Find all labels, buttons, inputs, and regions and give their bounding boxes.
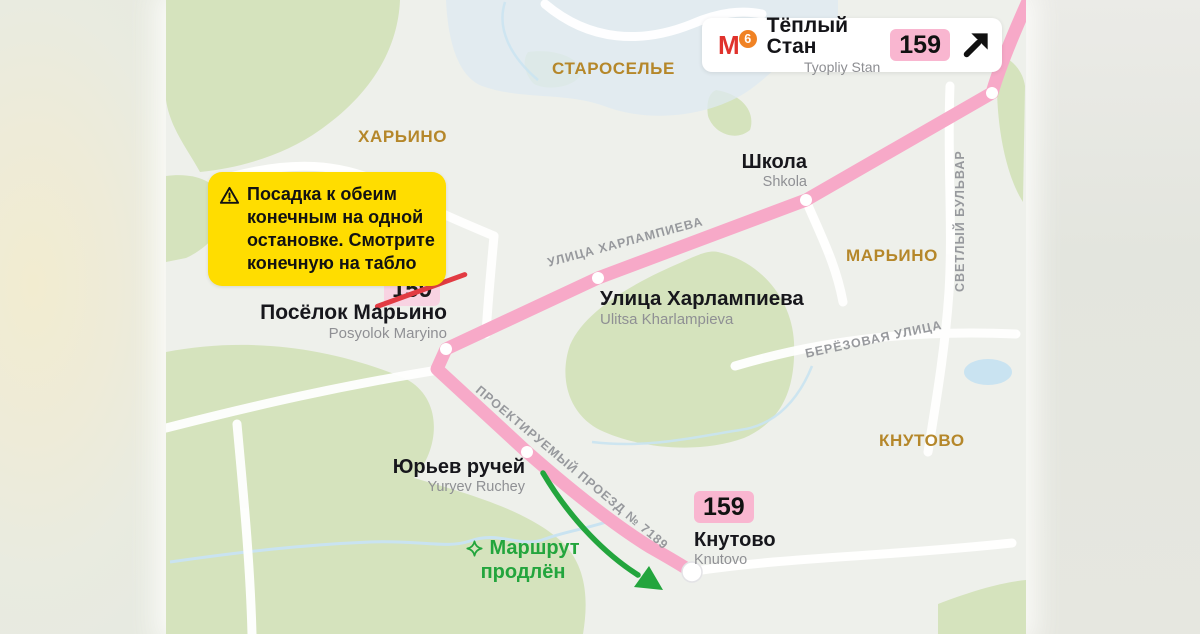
- stop-name: Кнутово: [694, 529, 776, 552]
- route-badge-header: 159: [890, 29, 950, 61]
- boarding-warning-box: Посадка к обеим конечным на одной остано…: [208, 172, 446, 286]
- metro-line-6-icon: 6: [739, 30, 757, 48]
- district-label-kharino: ХАРЬИНО: [358, 127, 447, 147]
- sparkle-icon: [466, 540, 483, 557]
- stop-translit: Shkola: [655, 174, 807, 191]
- stop-dot: [440, 343, 452, 355]
- green-area: [938, 580, 1026, 634]
- district-label-maryino: МАРЬИНО: [846, 246, 938, 266]
- stop-dot: [986, 87, 998, 99]
- warning-triangle-icon: [219, 186, 240, 205]
- stop-translit: Knutovo: [694, 552, 776, 569]
- blurred-left-border: [0, 0, 166, 634]
- stop-name: Школа: [655, 151, 807, 174]
- stop-translit: Ulitsa Kharlampieva: [600, 311, 804, 329]
- annotation-text-line1: Маршрут: [489, 536, 579, 560]
- warning-text-line: Посадка к обеим: [247, 183, 435, 206]
- metro-letter: М: [718, 32, 740, 58]
- warning-text-line: конечную на табло: [247, 252, 435, 275]
- arrow-up-right-icon: [962, 31, 990, 59]
- stop-label-posyolok-maryino: Посёлок Марьино Posyolok Maryino: [207, 301, 447, 343]
- extension-arrow-head: [634, 566, 663, 590]
- road: [807, 203, 843, 302]
- stop-label-shkola: Школа Shkola: [655, 151, 807, 191]
- warning-text-line: остановке. Смотрите: [247, 229, 435, 252]
- stop-translit: Yuryev Ruchey: [375, 479, 525, 496]
- route-badge-knutovo: 159: [694, 491, 754, 523]
- stop-name: Юрьев ручей: [375, 456, 525, 479]
- blurred-right-border: [1026, 0, 1200, 634]
- station-name: Тёплый Стан: [767, 15, 881, 57]
- stop-translit: Posyolok Maryino: [207, 325, 447, 343]
- metro-m-icon: М 6: [718, 32, 757, 58]
- stop-name: Улица Харлампиева: [600, 287, 804, 311]
- stop-dot: [592, 272, 604, 284]
- annotation-line1: Маршрут: [452, 536, 594, 560]
- stop-label-knutovo: 159 Кнутово Knutovo: [694, 491, 776, 569]
- warning-text-line: конечным на одной: [247, 206, 435, 229]
- district-label-knutovo: КНУТОВО: [879, 431, 965, 451]
- road: [486, 236, 494, 334]
- stop-label-yuryev-ruchey: Юрьев ручей Yuryev Ruchey: [375, 456, 525, 496]
- route-extended-annotation: Маршрут продлён: [452, 536, 594, 584]
- road-svetly-bulvar: [928, 86, 950, 452]
- station-translit: Tyopliy Stan: [804, 59, 880, 75]
- route-map-infographic: СТАРОСЕЛЬЕ ХАРЬИНО МАРЬИНО КНУТОВО УЛИЦА…: [0, 0, 1200, 634]
- street-label-svetly-bulvar: СВЕТЛЫЙ БУЛЬВАР: [953, 150, 967, 292]
- annotation-text-line2: продлён: [452, 560, 594, 584]
- district-label-staroselye: СТАРОСЕЛЬЕ: [552, 59, 675, 79]
- stop-dot: [800, 194, 812, 206]
- pond: [964, 359, 1012, 385]
- station-name-block: Тёплый Стан Tyopliy Stan: [767, 15, 881, 75]
- stop-name: Посёлок Марьино: [207, 301, 447, 325]
- metro-terminus-card: М 6 Тёплый Стан Tyopliy Stan 159: [702, 18, 1002, 72]
- warning-text: Посадка к обеим конечным на одной остано…: [247, 183, 435, 275]
- stop-label-ulitsa-kharlampieva: Улица Харлампиева Ulitsa Kharlampieva: [600, 287, 804, 329]
